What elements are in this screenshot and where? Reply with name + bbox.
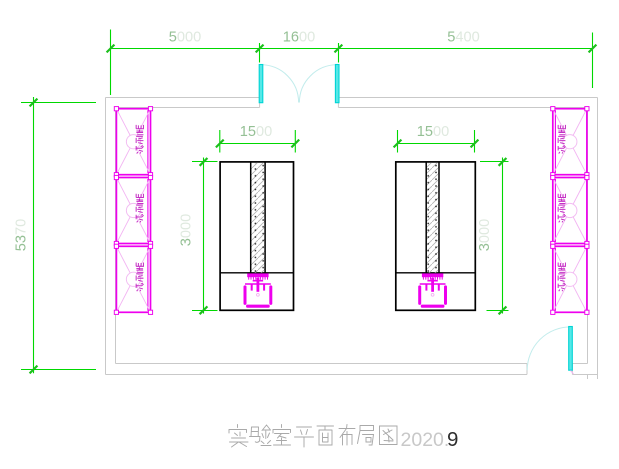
svg-text:5000: 5000 — [169, 30, 201, 46]
svg-text:5370: 5370 — [14, 219, 30, 251]
svg-text:1500: 1500 — [417, 124, 449, 140]
svg-text:3000: 3000 — [477, 219, 493, 251]
svg-text:5400: 5400 — [447, 30, 479, 46]
svg-text:1600: 1600 — [283, 30, 315, 46]
svg-text:2020.: 2020. — [401, 429, 450, 451]
svg-text:1500: 1500 — [240, 124, 272, 140]
svg-text:9: 9 — [447, 428, 458, 451]
svg-text:3000: 3000 — [179, 214, 195, 246]
